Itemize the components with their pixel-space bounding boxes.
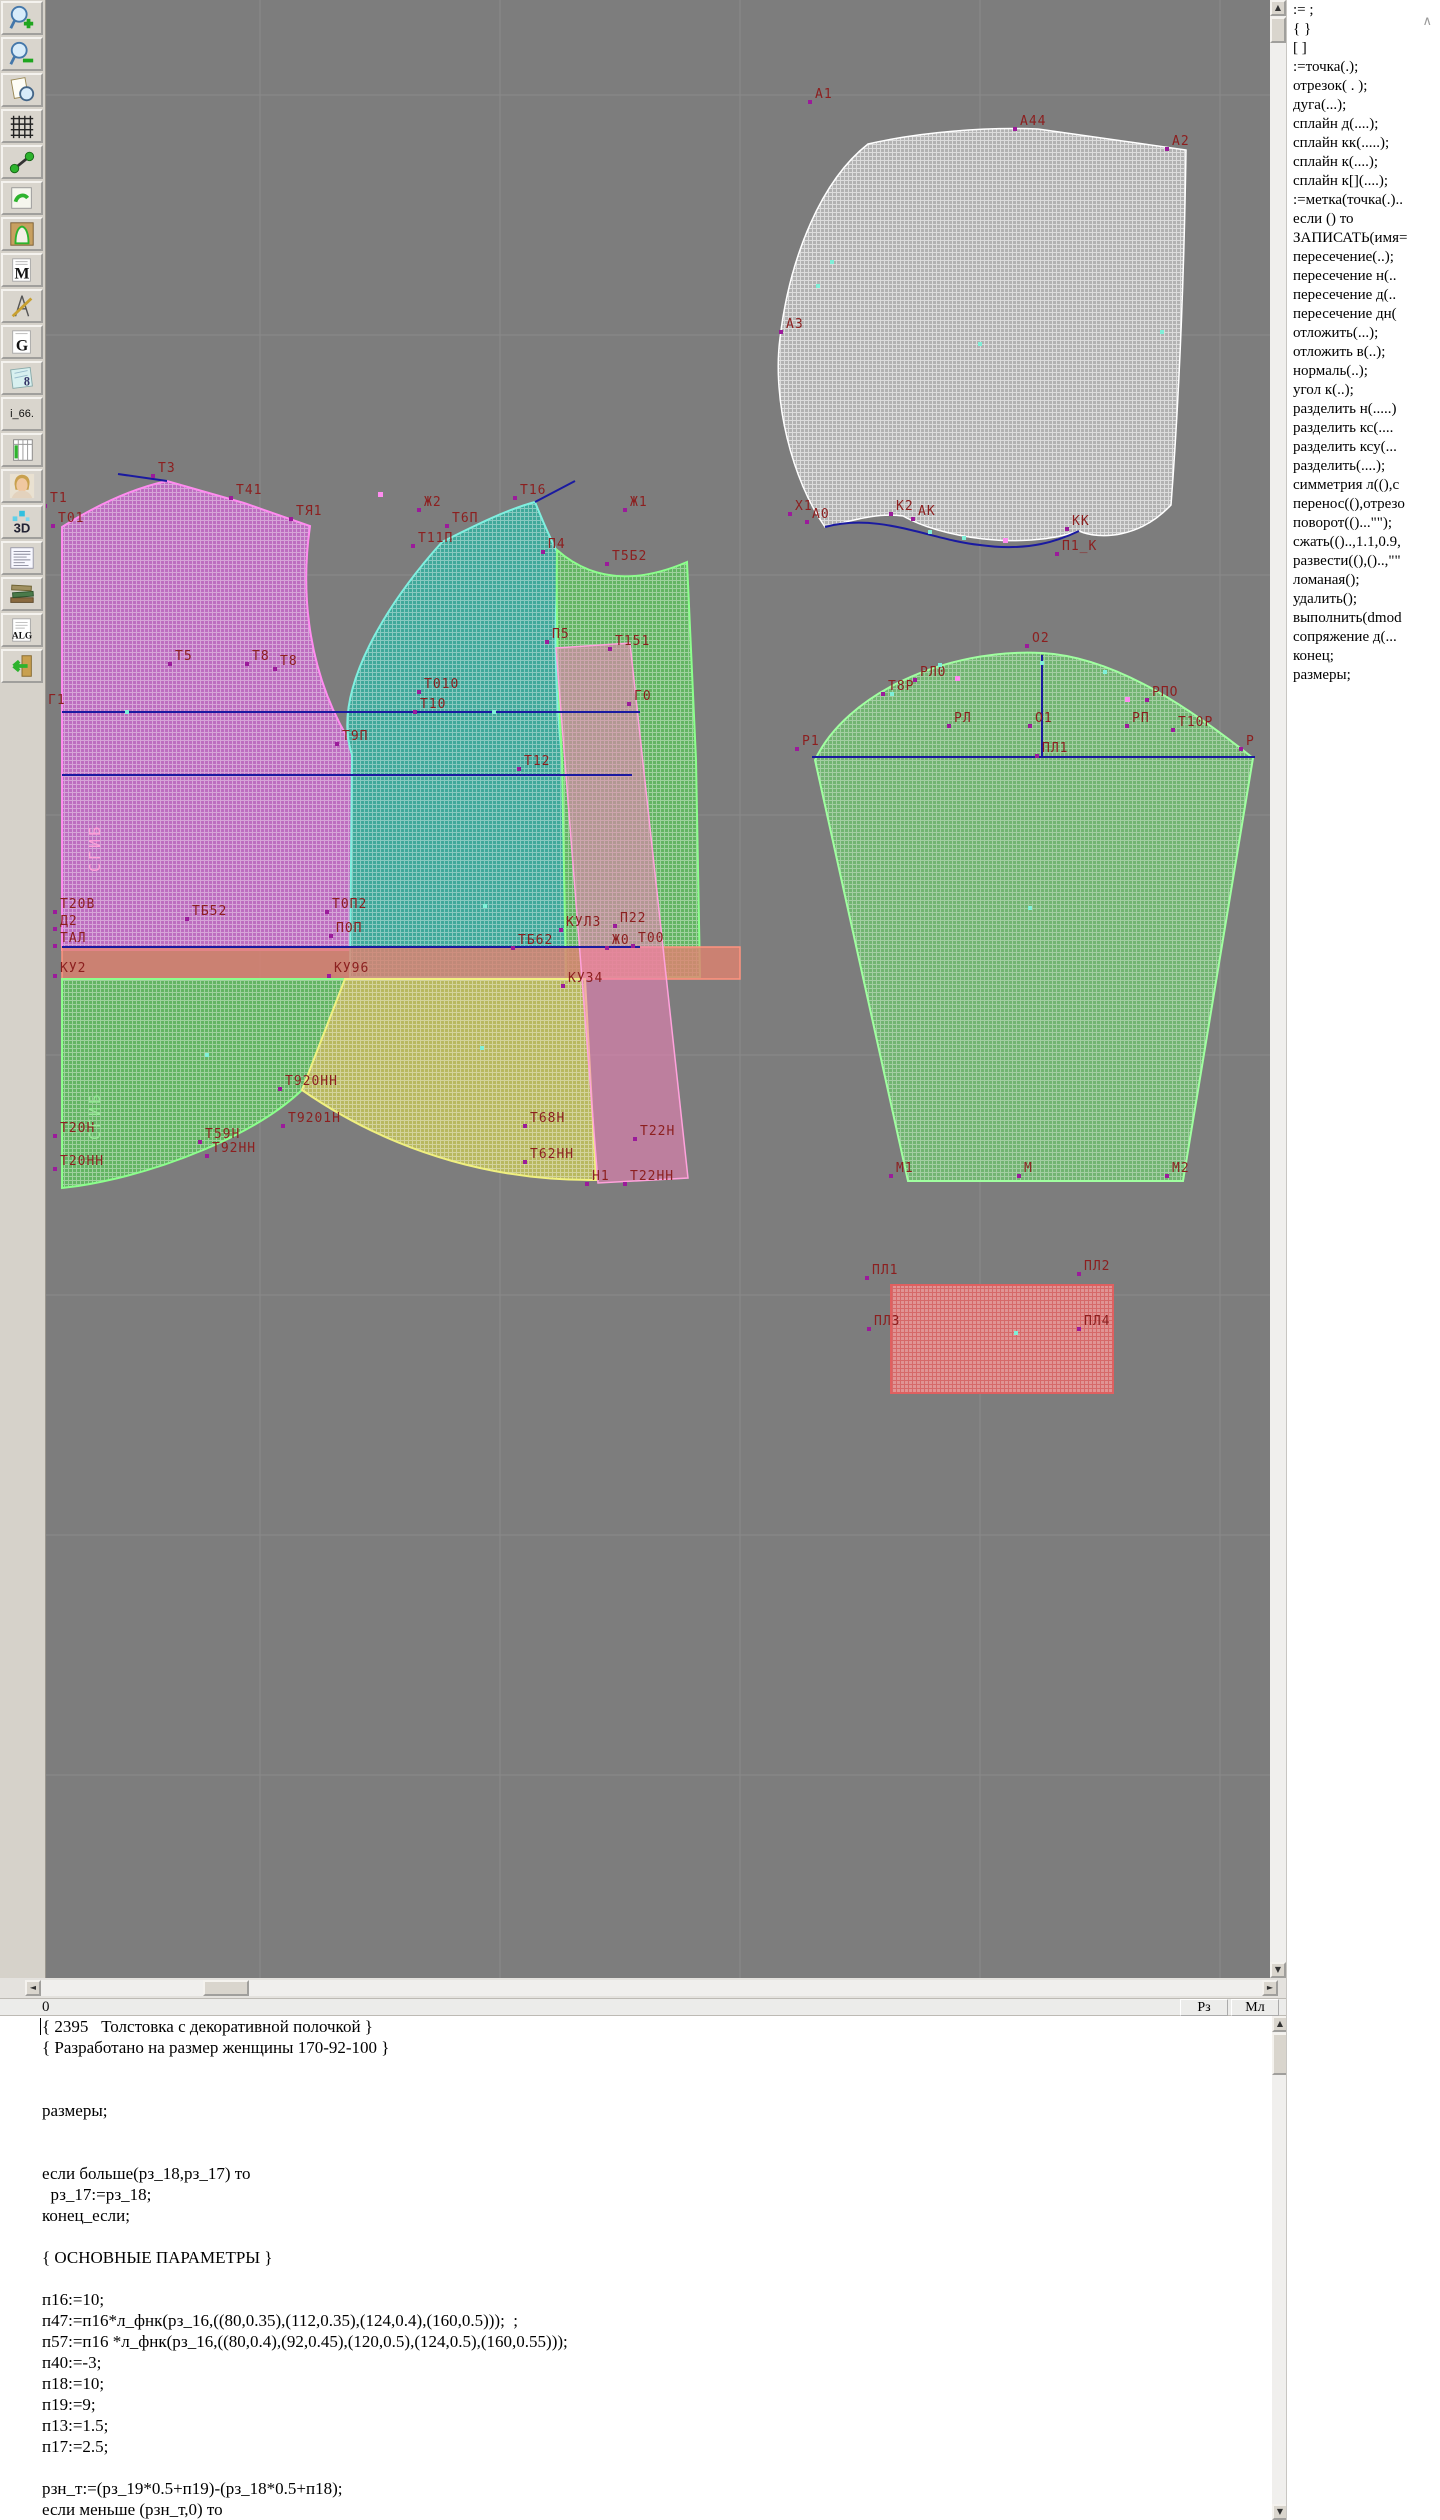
command-item[interactable]: размеры; (1293, 666, 1440, 685)
point-marker (51, 524, 55, 528)
preview-icon[interactable] (1, 73, 43, 107)
point-label: Ж0 (612, 934, 630, 947)
point-marker (613, 924, 617, 928)
command-item[interactable]: отложить в(..); (1293, 343, 1440, 362)
curve-node-marker (938, 663, 942, 667)
svg-text:3D: 3D (14, 520, 31, 535)
svg-text:ALG: ALG (12, 631, 32, 641)
left-toolbar: MG8i_66.3DALG (0, 0, 46, 1978)
point-marker (289, 517, 293, 521)
point-marker (889, 512, 893, 516)
command-item[interactable]: разделить(....); (1293, 457, 1440, 476)
i66-button-label: i_66. (10, 408, 34, 420)
point-labels-layer: Т1Т01Т3Т41ТЯ1Ж2Т6ПТ16Т11ПЖ1Х1П4Т5Б2П5Т15… (46, 0, 1270, 1978)
editor-line[interactable]: п47:=п16*л_фнк(рз_16,((80,0.35),(112,0.3… (0, 2310, 1288, 2331)
point-marker (523, 1160, 527, 1164)
point-marker (559, 928, 563, 932)
command-item[interactable]: разделить ксу(... (1293, 438, 1440, 457)
point-marker (325, 910, 329, 914)
point-label: Т9П (342, 730, 368, 743)
point-label: Т5Б2 (612, 550, 647, 563)
point-label: РПО (1152, 686, 1178, 699)
exit-icon[interactable] (1, 649, 43, 683)
point-label: О1 (1035, 712, 1053, 725)
point-label: Т01 (58, 512, 84, 525)
point-label: О2 (1032, 632, 1050, 645)
ml-button[interactable]: Мл (1231, 1999, 1279, 2016)
preview-icon-glyph (7, 76, 37, 104)
pattern-piece-icon[interactable] (1, 217, 43, 251)
command-item[interactable]: сплайн д(....); (1293, 115, 1440, 134)
point-marker (511, 946, 515, 950)
point-marker (808, 100, 812, 104)
portrait-icon-glyph (7, 472, 37, 500)
command-item[interactable]: симметрия л((),с (1293, 476, 1440, 495)
point-label: Н1 (592, 1170, 610, 1183)
svg-text:M: M (15, 265, 30, 282)
editor-line[interactable]: п17:=2.5; (0, 2436, 1288, 2457)
fold-line-label: СГИБ (86, 824, 104, 872)
point-label: Т8 (252, 650, 270, 663)
point-label: П5 (552, 628, 570, 641)
point-label: РЛ (954, 712, 972, 725)
point-marker (53, 1167, 57, 1171)
editor-line[interactable] (0, 2121, 1288, 2142)
scroll-up-button[interactable]: ▲ (1270, 0, 1286, 16)
command-item[interactable]: пересечение(..); (1293, 248, 1440, 267)
pattern-canvas[interactable]: Т1Т01Т3Т41ТЯ1Ж2Т6ПТ16Т11ПЖ1Х1П4Т5Б2П5Т15… (46, 0, 1270, 1978)
command-item[interactable]: сплайн кк(.....); (1293, 134, 1440, 153)
point-marker (608, 647, 612, 651)
point-label: Т11П (418, 532, 453, 545)
g-document-icon-glyph: G (7, 328, 37, 356)
point-marker (185, 917, 189, 921)
svg-text:G: G (16, 337, 28, 354)
point-marker (413, 710, 417, 714)
point-marker (245, 662, 249, 666)
curve-node-marker (816, 284, 820, 288)
g-document-icon[interactable]: G (1, 325, 43, 359)
point-marker (1145, 698, 1149, 702)
scroll-right-button[interactable]: ► (1262, 1980, 1278, 1996)
curve-node-marker (890, 692, 894, 696)
point-label: Т6П (452, 512, 478, 525)
point-label: А1 (815, 88, 833, 101)
command-item[interactable]: дуга(...); (1293, 96, 1440, 115)
text-list-icon-glyph (7, 544, 37, 572)
point-marker (1013, 127, 1017, 131)
fold-line-label: СГИБ (86, 1092, 104, 1140)
grid-icon[interactable] (1, 109, 43, 143)
construct-icon[interactable] (1, 289, 43, 323)
point-marker (1035, 754, 1039, 758)
point-marker (281, 1124, 285, 1128)
grid-icon-glyph (7, 112, 37, 140)
point-marker (53, 927, 57, 931)
alg-document-icon[interactable]: ALG (1, 613, 43, 647)
exit-icon-glyph (7, 652, 37, 680)
vertical-scroll-thumb[interactable] (1270, 17, 1286, 43)
command-item[interactable]: угол к(..); (1293, 381, 1440, 400)
point-label: ПЛ4 (1084, 1315, 1110, 1328)
editor-status-row: 0 Рз Мл (0, 1998, 1288, 2016)
point-label: Х1 (795, 500, 813, 513)
point-marker (805, 520, 809, 524)
command-item[interactable]: [ ] (1293, 39, 1440, 58)
point-label: КК (1072, 515, 1090, 528)
sketch-icon[interactable] (1, 181, 43, 215)
point-marker (517, 767, 521, 771)
point-marker (273, 667, 277, 671)
point-label: Т20НН (60, 1155, 104, 1168)
command-item[interactable]: развести((),()..,"" (1293, 552, 1440, 571)
zoom-in-icon[interactable] (1, 1, 43, 35)
control-node-marker (378, 492, 383, 497)
point-marker (1165, 1174, 1169, 1178)
point-marker (46, 504, 47, 508)
sizes-document-icon[interactable]: 8 (1, 361, 43, 395)
editor-line[interactable]: рзн_т:=(рз_19*0.5+п19)-(рз_18*0.5+п18); (0, 2478, 1288, 2499)
point-label: М (1024, 1162, 1033, 1175)
point-marker (523, 1124, 527, 1128)
curve-node-marker (978, 342, 982, 346)
point-label: М1 (896, 1162, 914, 1175)
rz-button[interactable]: Рз (1180, 1999, 1228, 2016)
command-panel: := ;{ }[ ]:=точка(.);отрезок( . );дуга(.… (1286, 0, 1440, 2520)
point-marker (788, 512, 792, 516)
text-caret (40, 2018, 41, 2035)
point-label: Т59Н (205, 1128, 240, 1141)
point-label: Т12 (524, 755, 550, 768)
editor-line[interactable]: п57:=п16 *л_фнк(рз_16,((80,0.4),(92,0.45… (0, 2331, 1288, 2352)
command-item[interactable]: выполнить(dmod (1293, 609, 1440, 628)
m-document-icon-glyph: M (7, 256, 37, 284)
point-label: П0П (336, 922, 362, 935)
command-item[interactable]: нормаль(..); (1293, 362, 1440, 381)
point-label: Т5 (175, 650, 193, 663)
point-marker (1165, 147, 1169, 151)
command-item[interactable]: :=метка(точка(.).. (1293, 191, 1440, 210)
scroll-left-button[interactable]: ◄ (25, 1980, 41, 1996)
curve-node-marker (492, 710, 496, 714)
point-label: М2 (1172, 1162, 1190, 1175)
point-label: А0 (812, 508, 830, 521)
point-label: ПЛ1 (1042, 742, 1068, 755)
point-marker (623, 1182, 627, 1186)
editor-line[interactable]: п40:=-3; (0, 2352, 1288, 2373)
m-document-icon[interactable]: M (1, 253, 43, 287)
point-label: ТБ62 (518, 934, 553, 947)
point-marker (1065, 527, 1069, 531)
editor-line[interactable]: п19:=9; (0, 2394, 1288, 2415)
zoom-out-icon[interactable] (1, 37, 43, 71)
point-label: Р1 (802, 735, 820, 748)
svg-text:8: 8 (24, 374, 30, 388)
sketch-icon-glyph (7, 184, 37, 212)
point-label: К2 (896, 500, 914, 513)
point-marker (631, 944, 635, 948)
curve-node-marker (480, 1046, 484, 1050)
editor-line[interactable]: п18:=10; (0, 2373, 1288, 2394)
text-list-icon[interactable] (1, 541, 43, 575)
point-label: Р (1246, 735, 1255, 748)
point-marker (445, 524, 449, 528)
books-icon-glyph (7, 580, 37, 608)
point-label: ТЯ1 (296, 505, 322, 518)
command-item[interactable]: поворот(()...""); (1293, 514, 1440, 533)
zoom-out-icon-glyph (7, 40, 37, 68)
point-label: Т10 (420, 698, 446, 711)
point-marker (867, 1327, 871, 1331)
editor-line[interactable]: п13:=1.5; (0, 2415, 1288, 2436)
point-marker (541, 550, 545, 554)
point-label: Т41 (236, 484, 262, 497)
editor-line[interactable] (0, 2457, 1288, 2478)
control-node-marker (955, 676, 960, 681)
point-label: А2 (1172, 135, 1190, 148)
point-marker (198, 1140, 202, 1144)
editor-line[interactable]: размеры; (0, 2100, 1288, 2121)
editor-line[interactable]: конец_если; (0, 2205, 1288, 2226)
canvas-vertical-scrollbar[interactable]: ▲ ▼ (1270, 0, 1286, 1978)
curve-node-marker (928, 530, 932, 534)
point-marker (947, 724, 951, 728)
point-label: Т920НН (285, 1075, 338, 1088)
point-marker (1017, 1174, 1021, 1178)
point-label: РЛ0 (920, 666, 946, 679)
point-label: Т010 (424, 678, 459, 691)
point-marker (417, 690, 421, 694)
point-marker (53, 1134, 57, 1138)
point-label: Т20В (60, 898, 95, 911)
scroll-down-button[interactable]: ▼ (1270, 1962, 1286, 1978)
point-marker (513, 496, 517, 500)
command-item[interactable]: отрезок( . ); (1293, 77, 1440, 96)
point-marker (881, 692, 885, 696)
editor-line[interactable]: п16:=10; (0, 2289, 1288, 2310)
point-label: Г0 (634, 690, 652, 703)
curve-node-marker (1040, 661, 1044, 665)
command-item[interactable]: пересечение д(.. (1293, 286, 1440, 305)
pattern-piece-icon-glyph (7, 220, 37, 248)
point-marker (1077, 1327, 1081, 1331)
point-label: Т3 (158, 462, 176, 475)
curve-node-marker (1160, 330, 1164, 334)
panel-scroll-up-icon[interactable]: ∧ (1422, 14, 1432, 29)
sizes-document-icon-glyph: 8 (7, 364, 37, 392)
curve-node-marker (1103, 670, 1107, 674)
point-label: ПЛ2 (1084, 1260, 1110, 1273)
curve-node-marker (483, 904, 487, 908)
point-marker (327, 974, 331, 978)
curve-node-marker (830, 260, 834, 264)
point-label: КУЛ3 (566, 916, 601, 929)
point-label: ТАЛ (60, 932, 86, 945)
command-item[interactable]: сжать(()..,1.1,0.9, (1293, 533, 1440, 552)
curve-node-marker (1028, 906, 1032, 910)
point-label: П4 (548, 538, 566, 551)
point-label: Ж1 (630, 496, 648, 509)
point-marker (1171, 728, 1175, 732)
curve-node-marker (962, 536, 966, 540)
curve-node-marker (205, 1053, 209, 1057)
point-label: Т9201Н (288, 1112, 341, 1125)
point-label: Т0П2 (332, 898, 367, 911)
point-label: Т1 (50, 492, 68, 505)
point-label: ПЛ3 (874, 1315, 900, 1328)
point-label: П1_К (1062, 540, 1097, 553)
point-marker (585, 1182, 589, 1186)
point-label: Г1 (48, 694, 66, 707)
code-editor[interactable]: { 2395 Толстовка с декоративной полочкой… (0, 2016, 1288, 2520)
command-item[interactable]: разделить кс(.... (1293, 419, 1440, 438)
point-marker (911, 517, 915, 521)
measure-icon-glyph (7, 148, 37, 176)
line-number: 0 (42, 1999, 50, 2016)
point-label: А3 (786, 318, 804, 331)
editor-line[interactable]: { 2395 Толстовка с декоративной полочкой… (0, 2016, 1288, 2037)
editor-line[interactable] (0, 2226, 1288, 2247)
curve-node-marker (1014, 1331, 1018, 1335)
i66-button[interactable]: i_66. (1, 397, 43, 431)
control-node-marker (1003, 538, 1008, 543)
point-marker (205, 1154, 209, 1158)
portrait-icon[interactable] (1, 469, 43, 503)
command-item[interactable]: сопряжение д(... (1293, 628, 1440, 647)
zoom-in-icon-glyph (7, 4, 37, 32)
point-label: П22 (620, 912, 646, 925)
point-marker (1055, 552, 1059, 556)
point-label: Т10Р (1178, 716, 1213, 729)
control-node-marker (1125, 697, 1130, 702)
point-label: Ж2 (424, 496, 442, 509)
command-item[interactable]: ЗАПИСАТЬ(имя= (1293, 229, 1440, 248)
point-label: Т8 (280, 655, 298, 668)
point-label: Д2 (60, 915, 78, 928)
books-icon[interactable] (1, 577, 43, 611)
point-label: РП (1132, 712, 1150, 725)
point-marker (561, 984, 565, 988)
command-item[interactable]: если () то (1293, 210, 1440, 229)
point-marker (779, 330, 783, 334)
point-marker (913, 678, 917, 682)
point-marker (53, 944, 57, 948)
command-item[interactable]: удалить(); (1293, 590, 1440, 609)
horizontal-scroll-thumb[interactable] (203, 1980, 249, 1996)
point-marker (53, 910, 57, 914)
point-label: Т68Н (530, 1112, 565, 1125)
command-item[interactable]: ломаная(); (1293, 571, 1440, 590)
3d-icon[interactable]: 3D (1, 505, 43, 539)
point-marker (411, 544, 415, 548)
point-marker (168, 662, 172, 666)
point-marker (229, 496, 233, 500)
point-marker (545, 640, 549, 644)
command-item[interactable]: сплайн к[](....); (1293, 172, 1440, 191)
command-item[interactable]: пересечение н(.. (1293, 267, 1440, 286)
point-label: Т151 (615, 635, 650, 648)
point-label: ПЛ1 (872, 1264, 898, 1277)
command-item[interactable]: { } (1293, 20, 1440, 39)
point-label: Т00 (638, 932, 664, 945)
command-item[interactable]: конец; (1293, 647, 1440, 666)
point-marker (795, 747, 799, 751)
editor-line[interactable] (0, 2058, 1288, 2079)
point-marker (417, 508, 421, 512)
command-item[interactable]: пересечение дн( (1293, 305, 1440, 324)
canvas-horizontal-scrollbar[interactable]: ◄ ► (25, 1980, 1278, 1996)
table-icon[interactable] (1, 433, 43, 467)
construct-icon-glyph (7, 292, 37, 320)
point-label: ТБ52 (192, 905, 227, 918)
point-label: АК (918, 505, 936, 518)
point-label: Т22НН (630, 1170, 674, 1183)
point-label: А44 (1020, 115, 1046, 128)
editor-line[interactable]: рз_17:=рз_18; (0, 2184, 1288, 2205)
point-marker (335, 742, 339, 746)
point-label: КУ2 (60, 962, 86, 975)
command-item[interactable]: := ; (1293, 1, 1440, 20)
command-item[interactable]: :=точка(.); (1293, 58, 1440, 77)
editor-line[interactable] (0, 2079, 1288, 2100)
point-marker (623, 508, 627, 512)
point-marker (605, 946, 609, 950)
command-list: := ;{ }[ ]:=точка(.);отрезок( . );дуга(.… (1293, 1, 1440, 685)
point-marker (1125, 724, 1129, 728)
point-label: КУ34 (568, 972, 603, 985)
point-label: Т92НН (212, 1142, 256, 1155)
point-marker (627, 702, 631, 706)
editor-line[interactable]: { ОСНОВНЫЕ ПАРАМЕТРЫ } (0, 2247, 1288, 2268)
point-marker (53, 974, 57, 978)
point-marker (1028, 724, 1032, 728)
point-marker (1239, 747, 1243, 751)
point-marker (1077, 1272, 1081, 1276)
command-item[interactable]: перенос((),отрезо (1293, 495, 1440, 514)
point-label: Т62НН (530, 1148, 574, 1161)
point-label: Т22Н (640, 1125, 675, 1138)
point-marker (633, 1137, 637, 1141)
point-label: КУ96 (334, 962, 369, 975)
editor-line[interactable] (0, 2142, 1288, 2163)
point-marker (889, 1174, 893, 1178)
point-marker (605, 562, 609, 566)
measure-icon[interactable] (1, 145, 43, 179)
alg-document-icon-glyph: ALG (7, 616, 37, 644)
editor-line[interactable]: { Разработано на размер женщины 170-92-1… (0, 2037, 1288, 2058)
editor-line[interactable] (0, 2268, 1288, 2289)
point-marker (865, 1276, 869, 1280)
command-item[interactable]: отложить(...); (1293, 324, 1440, 343)
3d-icon-glyph: 3D (7, 508, 37, 536)
point-marker (278, 1087, 282, 1091)
command-item[interactable]: сплайн к(....); (1293, 153, 1440, 172)
point-marker (151, 474, 155, 478)
point-marker (1025, 644, 1029, 648)
table-icon-glyph (7, 436, 37, 464)
curve-node-marker (125, 710, 129, 714)
point-marker (329, 934, 333, 938)
point-label: Т16 (520, 484, 546, 497)
command-item[interactable]: разделить н(.....) (1293, 400, 1440, 419)
editor-line[interactable]: если больше(рз_18,рз_17) то (0, 2163, 1288, 2184)
editor-line[interactable]: если меньше (рзн_т,0) то (0, 2499, 1288, 2520)
